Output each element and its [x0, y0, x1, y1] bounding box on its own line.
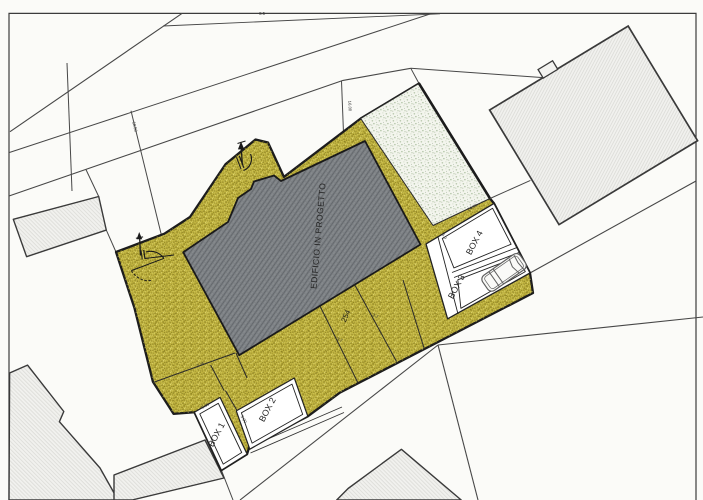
svg-text:8.5: 8.5: [259, 11, 265, 16]
svg-text:16.00: 16.00: [347, 101, 353, 112]
